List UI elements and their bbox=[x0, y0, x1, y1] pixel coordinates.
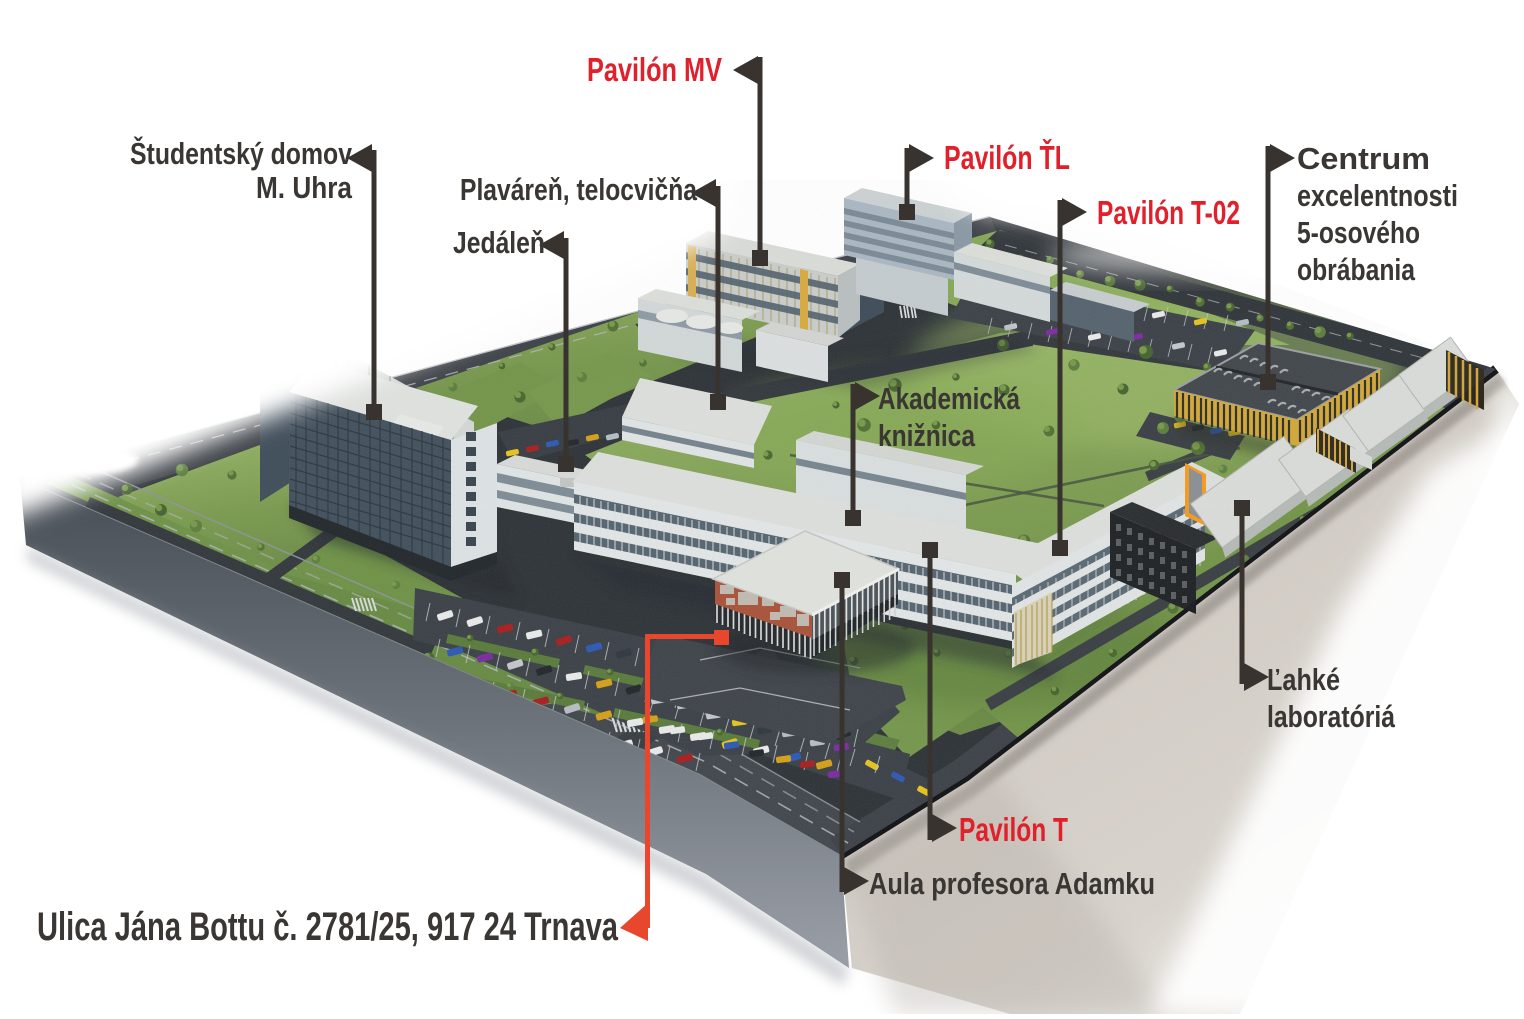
svg-text:obrábania: obrábania bbox=[1297, 252, 1416, 287]
svg-text:Ulica Jána Bottu č. 2781/25, 9: Ulica Jána Bottu č. 2781/25, 917 24 Trna… bbox=[37, 905, 619, 949]
svg-text:Ľahké: Ľahké bbox=[1267, 662, 1340, 697]
svg-text:Plaváreň, telocvičňa: Plaváreň, telocvičňa bbox=[460, 172, 698, 207]
svg-text:Aula profesora Adamku: Aula profesora Adamku bbox=[869, 866, 1155, 901]
svg-text:5-osového: 5-osového bbox=[1297, 215, 1420, 250]
svg-text:Pavilón MV: Pavilón MV bbox=[587, 51, 722, 88]
svg-text:Centrum: Centrum bbox=[1297, 141, 1430, 176]
svg-text:Pavilón T: Pavilón T bbox=[959, 811, 1068, 848]
svg-text:Akademická: Akademická bbox=[878, 381, 1021, 416]
svg-text:knižnica: knižnica bbox=[878, 418, 976, 453]
svg-text:Pavilón T-02: Pavilón T-02 bbox=[1097, 194, 1240, 231]
svg-text:laboratóriá: laboratóriá bbox=[1267, 699, 1396, 734]
svg-text:Pavilón ŤL: Pavilón ŤL bbox=[944, 139, 1070, 176]
svg-text:M. Uhra: M. Uhra bbox=[256, 170, 353, 205]
svg-text:excelentnosti: excelentnosti bbox=[1297, 178, 1458, 213]
svg-text:Študentský domov: Študentský domov bbox=[130, 135, 353, 171]
svg-text:Jedáleň: Jedáleň bbox=[453, 225, 545, 260]
